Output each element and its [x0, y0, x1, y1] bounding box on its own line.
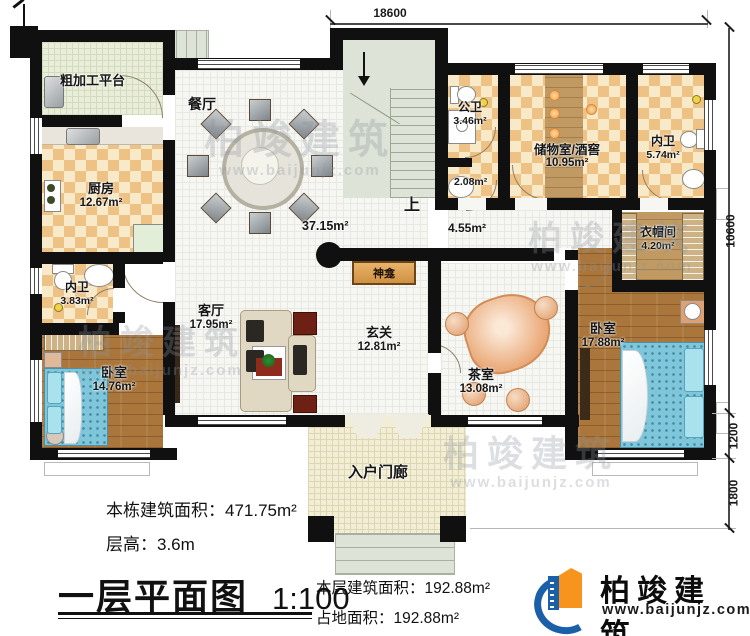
wall: [163, 140, 175, 262]
wall: [113, 252, 125, 288]
window: [30, 360, 42, 422]
kitchen-sink: [66, 128, 100, 145]
kitchen-fridge: [133, 224, 165, 253]
sofa-cushion: [246, 320, 264, 342]
stair-treads: [390, 88, 436, 198]
window: [30, 118, 42, 154]
wall: [42, 115, 122, 127]
building-total-area: 本栋建筑面积：471.75m²: [106, 496, 297, 521]
label-inner-wc-right: 内卫 5.74m²: [638, 135, 688, 161]
dining-chair: [249, 99, 271, 121]
living-name: 客厅: [180, 304, 242, 319]
bedroom-left-pillow: [47, 406, 62, 434]
inner-wc-left-area: 3.83m²: [52, 295, 102, 307]
label-cloakroom: 衣帽间 4.20m²: [630, 226, 686, 252]
porch-column: [440, 516, 466, 542]
window: [643, 64, 689, 74]
stair-entry-line: [363, 52, 365, 78]
window: [515, 64, 603, 74]
stove-burner: [47, 196, 55, 204]
floor-area: 本层建筑面积：192.88m²: [316, 576, 490, 598]
wall: [612, 210, 622, 282]
label-foyer: 玄关 12.81m²: [348, 326, 410, 354]
label-porch: 入户门廊: [348, 464, 408, 481]
inner-wc-right-name: 内卫: [638, 135, 688, 149]
dining-chair: [187, 155, 209, 177]
label-corridor-area: 4.55m²: [448, 222, 486, 236]
kitchen-name: 厨房: [58, 182, 144, 197]
title-underline-thin: [58, 618, 312, 619]
bedroom-left-area: 14.76m²: [83, 381, 145, 394]
label-inner-wc-left: 内卫 3.83m²: [52, 281, 102, 307]
label-dining-area: 37.15m²: [302, 219, 349, 233]
label-storage: 储物室/酒窖 10.95m²: [512, 143, 622, 171]
cellar-light: [549, 90, 560, 101]
wall: [113, 312, 125, 323]
logo-building-blue-icon: [548, 576, 559, 610]
footprint-area: 占地面积：192.88m²: [316, 606, 459, 628]
window: [198, 59, 300, 69]
window: [598, 450, 684, 458]
label-bedroom-left: 卧室 14.76m²: [83, 366, 145, 394]
label-tea-room: 茶室 13.08m²: [450, 368, 512, 396]
living-area: 17.95m²: [180, 319, 242, 332]
window: [704, 330, 716, 385]
bedroom-right-area: 17.88m²: [572, 337, 634, 350]
foyer-name: 玄关: [348, 326, 410, 341]
window: [198, 417, 286, 425]
label-dining: 餐厅: [188, 96, 216, 112]
label-living: 客厅 17.95m²: [180, 304, 242, 332]
tea-stool: [534, 296, 558, 320]
basin-right: [682, 169, 705, 189]
wall: [565, 250, 578, 260]
window-sill: [44, 462, 150, 476]
window-sill: [592, 462, 698, 476]
kitchen-area: 12.67m²: [58, 197, 144, 210]
tea-room-area: 13.08m²: [450, 383, 512, 396]
window: [30, 268, 42, 294]
window: [468, 417, 542, 425]
cellar-light: [586, 104, 597, 115]
wall: [42, 323, 119, 335]
wc-right-handle: [692, 95, 701, 104]
bedroom-right-pillow: [684, 396, 704, 438]
dim-right-porch: 1800: [726, 480, 740, 507]
label-public-wc: 公卫 3.46m²: [447, 101, 493, 127]
label-stairs-up: 上: [404, 197, 420, 215]
wall: [163, 70, 175, 95]
wall: [612, 280, 716, 292]
logo-building-orange-icon: [558, 568, 582, 608]
wall: [428, 373, 441, 415]
shrine-cabinet: 神龛: [352, 261, 416, 285]
armchair-cushion: [293, 345, 307, 375]
survey-flag: [23, 4, 25, 28]
label-kitchen: 厨房 12.67m²: [58, 182, 144, 210]
foyer-area: 12.81m²: [348, 341, 410, 354]
floor-plan: 神龛 粗加工平台 餐厅 37.15m² 厨房 12.67m² 公卫 3.46m²…: [0, 0, 750, 636]
bedroom-right-pillow: [684, 348, 704, 392]
dim-right-bay: 1200: [726, 423, 740, 450]
wall: [330, 28, 447, 40]
door-arc-bedroom-left: [122, 262, 163, 303]
wall: [565, 290, 578, 415]
wall-wc-divider: [438, 158, 472, 167]
floor-height: 层高：3.6m: [106, 530, 195, 555]
bedroom-left-name: 卧室: [83, 366, 145, 381]
bedroom-left-pillow: [47, 372, 62, 404]
kitchen-counter: [42, 127, 163, 145]
dining-chair: [249, 212, 271, 234]
window: [704, 100, 716, 150]
dining-chair: [311, 155, 333, 177]
public-wc-name: 公卫: [447, 101, 493, 115]
porch-steps: [335, 533, 455, 575]
logo-company-name: 柏竣建筑: [600, 566, 740, 636]
tea-room-name: 茶室: [450, 368, 512, 383]
bedroom-right-blanket: [622, 350, 648, 442]
bedroom-left-blanket: [64, 372, 82, 444]
tea-stool: [445, 312, 469, 336]
label-rough-platform: 粗加工平台: [60, 74, 125, 89]
window: [58, 450, 150, 458]
inner-wc-right-area: 5.74m²: [638, 149, 688, 161]
door-gap: [458, 198, 486, 210]
cellar-light: [549, 108, 560, 119]
inner-wc-left-name: 内卫: [52, 281, 102, 295]
extension-line: [470, 528, 736, 529]
shrine-label: 神龛: [373, 265, 395, 281]
wall-shrine: [318, 248, 554, 261]
wall: [163, 302, 175, 415]
nightstand-fan: [684, 303, 701, 320]
stove-burner: [47, 184, 55, 192]
cloakroom-area: 4.20m²: [630, 240, 686, 252]
tv-cabinet-bedroom-right: [580, 348, 590, 420]
dim-line-top: [330, 23, 708, 25]
bedroom-left-dresser: [44, 352, 62, 368]
label-bedroom-right: 卧室 17.88m²: [572, 322, 634, 350]
round-column: [316, 242, 342, 268]
door-gap: [515, 198, 547, 210]
dining-table-center: [241, 147, 279, 185]
door-gap: [640, 198, 668, 210]
storage-area: 10.95m²: [512, 157, 622, 170]
wall: [498, 75, 510, 205]
wall: [42, 252, 163, 264]
company-logo: 柏竣建筑 www.baijunjz.com: [534, 566, 740, 628]
label-washroom-area: 2.08m²: [454, 176, 487, 188]
stair-arrow: [358, 76, 370, 86]
side-table: [293, 395, 317, 413]
cloakroom-name: 衣帽间: [630, 226, 686, 240]
plant: [262, 354, 275, 367]
public-wc-area: 3.46m²: [447, 115, 493, 127]
side-table: [293, 312, 317, 335]
dim-top: 18600: [340, 6, 440, 20]
porch-column: [308, 516, 334, 542]
title-underline: [58, 612, 312, 615]
wall: [428, 261, 441, 353]
bedroom-right-name: 卧室: [572, 322, 634, 337]
wall: [626, 75, 638, 205]
cellar-light: [549, 128, 560, 139]
wall: [30, 30, 167, 42]
storage-name: 储物室/酒窖: [512, 143, 622, 157]
logo-website: www.baijunjz.com: [602, 602, 750, 618]
dim-right-main: 10600: [724, 214, 738, 247]
